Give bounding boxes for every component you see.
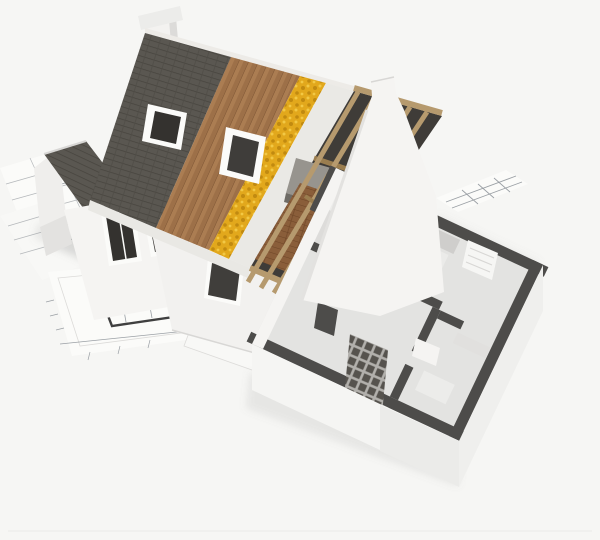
scene (0, 0, 600, 540)
roof-window-2 (219, 127, 266, 184)
architectural-render-image (0, 0, 600, 540)
